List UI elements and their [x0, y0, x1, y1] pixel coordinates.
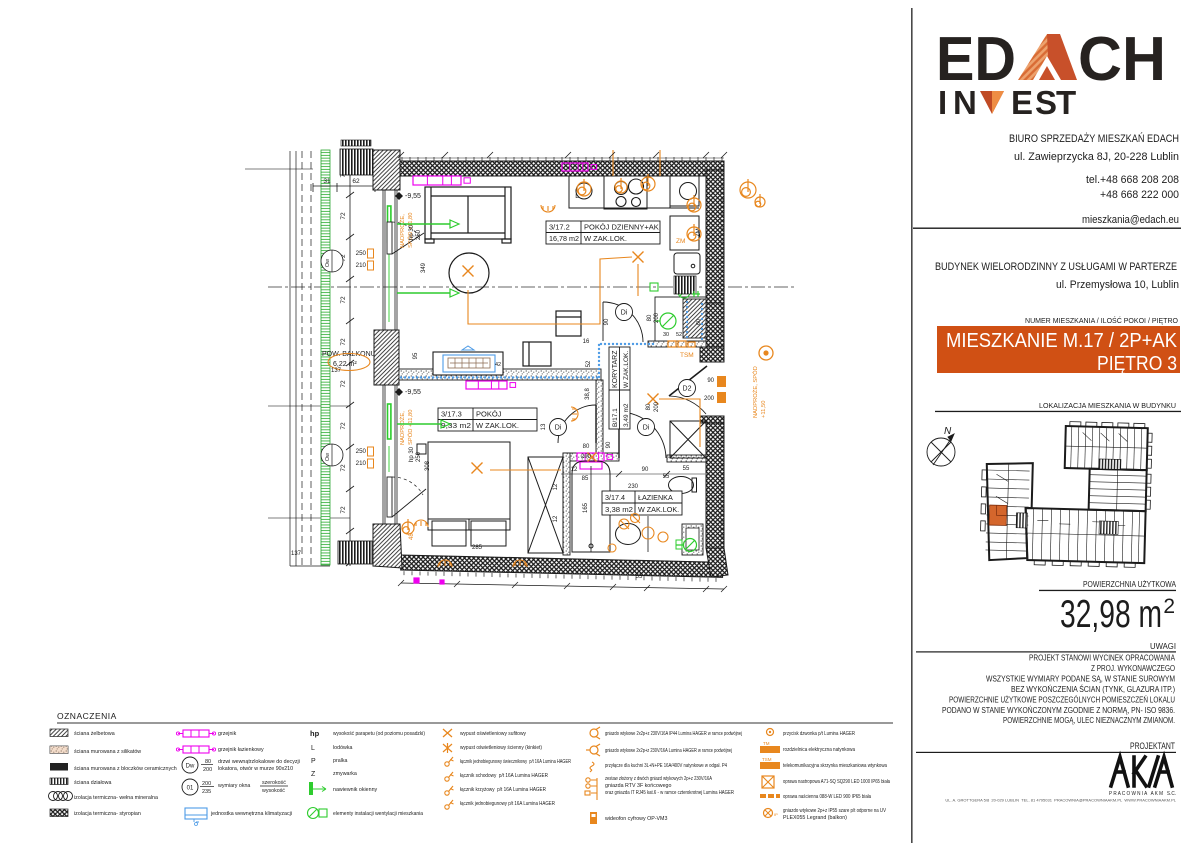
svg-text:gniazdo wtykowe 2x2p+z 230V/16: gniazdo wtykowe 2x2p+z 230V/16A Lumina H…: [605, 748, 732, 754]
svg-text:telekomunikacyjna skrzynka mie: telekomunikacyjna skrzynka mieszkaniowa …: [783, 763, 887, 769]
svg-text:wypust oświetleniowy ścienny (: wypust oświetleniowy ścienny (kinkiet): [460, 745, 542, 751]
svg-text:349: 349: [421, 262, 427, 273]
svg-text:ściana działowa: ściana działowa: [74, 780, 111, 786]
svg-text:62: 62: [352, 178, 360, 185]
svg-text:pralka: pralka: [333, 758, 347, 764]
svg-text:LOKALIZACJA MIESZKANIA W BUDYN: LOKALIZACJA MIESZKANIA W BUDYNKU: [1039, 401, 1176, 410]
svg-text:D2: D2: [683, 386, 692, 393]
svg-text:250: 250: [356, 250, 367, 257]
svg-text:72: 72: [340, 464, 347, 472]
svg-text:POWIERZCHNIA UŻYTKOWA: POWIERZCHNIA UŻYTKOWA: [1083, 579, 1176, 589]
svg-text:210: 210: [356, 262, 367, 269]
svg-text:80: 80: [647, 314, 653, 321]
svg-text:200: 200: [203, 767, 212, 773]
svg-text:UWAGI: UWAGI: [1150, 642, 1176, 651]
svg-text:308: 308: [425, 460, 431, 471]
svg-text:48: 48: [409, 533, 415, 540]
svg-text:72: 72: [340, 338, 347, 346]
svg-text:-9,55: -9,55: [405, 389, 421, 396]
svg-text:ul. Zawieprzycka 8J, 20-228 Lu: ul. Zawieprzycka 8J, 20-228 Lublin: [1014, 151, 1179, 163]
svg-text:CH: CH: [1078, 25, 1166, 94]
svg-text:72: 72: [340, 422, 347, 430]
svg-text:POKÓJ: POKÓJ: [476, 410, 502, 419]
svg-text:I: I: [938, 84, 947, 121]
svg-text:72: 72: [340, 506, 347, 514]
svg-text:80: 80: [646, 403, 652, 410]
svg-text:200: 200: [581, 454, 592, 460]
svg-text:165: 165: [583, 502, 589, 513]
svg-text:Ow: Ow: [325, 453, 331, 461]
svg-text:łącznik jednobiegunowy p/t 16A: łącznik jednobiegunowy p/t 16A Lumina HA…: [460, 801, 555, 807]
svg-text:BEZ WYKOŃCZENIA ŚCIAN (TYNK, G: BEZ WYKOŃCZENIA ŚCIAN (TYNK, GLAZURA ITP…: [1011, 683, 1175, 694]
svg-text:55: 55: [663, 474, 670, 480]
svg-text:3,38 m2: 3,38 m2: [605, 505, 633, 514]
svg-text:250: 250: [416, 451, 422, 462]
svg-text:OZNACZENIA: OZNACZENIA: [57, 711, 117, 721]
svg-text:POW. BALKONU: POW. BALKONU: [322, 351, 376, 358]
svg-text:137: 137: [331, 368, 342, 374]
svg-text:NADPROŻE,: NADPROŻE,: [399, 214, 406, 248]
svg-text:MIESZKANIE M.17 / 2P+AK: MIESZKANIE M.17 / 2P+AK: [946, 330, 1178, 352]
svg-text:BUDYNEK WIELORODZINNY Z USŁUGA: BUDYNEK WIELORODZINNY Z USŁUGAMI W PARTE…: [935, 261, 1177, 273]
svg-text:SPÓD +11,80: SPÓD +11,80: [407, 409, 414, 445]
svg-text:nawiewnik okienny: nawiewnik okienny: [333, 787, 378, 793]
svg-text:55: 55: [683, 466, 690, 472]
svg-text:Di: Di: [621, 310, 628, 317]
svg-text:N: N: [944, 426, 952, 437]
svg-text:S: S: [1035, 84, 1057, 121]
svg-text:wysokość parapetu (od poziomu: wysokość parapetu (od poziomu posadzki): [333, 731, 425, 737]
svg-text:BIURO SPRZEDAŻY MIESZKAŃ EDACH: BIURO SPRZEDAŻY MIESZKAŃ EDACH: [1009, 132, 1179, 145]
svg-text:30: 30: [663, 332, 669, 338]
svg-text:POWIERZCHNIE MOGĄ, ULEC NIEZNA: POWIERZCHNIE MOGĄ, ULEC NIEZNACZNYM ZMIA…: [1003, 715, 1175, 725]
svg-text:Dw: Dw: [186, 764, 195, 770]
svg-text:POWIERZCHNIE UŻYTKOWE POSZCZEG: POWIERZCHNIE UŻYTKOWE POSZCZEGÓLNYCH POM…: [949, 694, 1175, 704]
svg-text:90: 90: [642, 467, 649, 473]
svg-text:95: 95: [413, 352, 419, 359]
svg-text:POKÓJ DZIENNY+AK: POKÓJ DZIENNY+AK: [584, 223, 659, 232]
svg-text:PLEX055 Legrand (balkon): PLEX055 Legrand (balkon): [783, 815, 847, 821]
svg-text:wysokość: wysokość: [262, 788, 285, 794]
svg-text:P: P: [311, 758, 316, 765]
svg-text:16,78 m2: 16,78 m2: [549, 234, 579, 243]
svg-text:rozdzielnica elektryczna natyn: rozdzielnica elektryczna natynkowa: [783, 747, 855, 753]
svg-text:ZM: ZM: [676, 238, 685, 245]
svg-text:P R A C O W N I A A K M S.: P R A C O W N I A A K M S.C.: [1109, 791, 1176, 797]
svg-text:+11,50: +11,50: [761, 401, 767, 418]
svg-text:55: 55: [636, 574, 643, 580]
svg-text:ul. Przemysłowa 10, Lublin: ul. Przemysłowa 10, Lublin: [1056, 279, 1179, 291]
svg-text:12: 12: [553, 483, 559, 490]
svg-text:72: 72: [340, 296, 347, 304]
svg-text:ściana murowana z bloczków cer: ściana murowana z bloczków ceramicznych: [74, 766, 177, 772]
svg-text:przyłącze dla kuchni 3L+N+PE 1: przyłącze dla kuchni 3L+N+PE 16A/400V na…: [605, 763, 727, 769]
svg-text:lodówka: lodówka: [333, 745, 352, 751]
svg-text:jednostka wewnętrzna klimatyza: jednostka wewnętrzna klimatyzacji: [210, 811, 292, 817]
svg-text:250: 250: [356, 448, 367, 455]
svg-text:gniazdo wtykowe 2p+z IP55 szar: gniazdo wtykowe 2p+z IP55 szare p/t odpo…: [783, 808, 886, 814]
svg-text:+48 668 222 000: +48 668 222 000: [1100, 189, 1179, 201]
svg-text:52: 52: [586, 360, 592, 367]
svg-text:IP: IP: [774, 812, 778, 817]
svg-text:Z: Z: [311, 771, 316, 778]
svg-text:gniazdo wtykowe 2x2p+z 230V/16: gniazdo wtykowe 2x2p+z 230V/16A IP44 Lum…: [605, 731, 742, 737]
svg-text:zmywarka: zmywarka: [333, 771, 357, 777]
svg-text:TSM: TSM: [762, 757, 772, 762]
svg-text:6,22 m²: 6,22 m²: [333, 361, 357, 368]
svg-text:31: 31: [323, 178, 331, 185]
svg-text:hp: hp: [310, 729, 320, 738]
svg-text:38,8: 38,8: [585, 388, 591, 400]
svg-text:hp 30: hp 30: [409, 224, 415, 240]
svg-text:200: 200: [202, 781, 211, 787]
svg-text:łącznik krzyżowy p/t 16A Lumi: łącznik krzyżowy p/t 16A Lumina HAGER: [460, 787, 546, 793]
svg-text:izolacja termiczna- wełna mine: izolacja termiczna- wełna mineralna: [74, 795, 158, 801]
svg-text:42: 42: [495, 362, 501, 368]
svg-text:oraz gniazda IT RJ45 kat.6 - w: oraz gniazda IT RJ45 kat.6 - w ramce czt…: [605, 790, 734, 796]
svg-text:01: 01: [187, 786, 194, 792]
svg-text:PIĘTRO 3: PIĘTRO 3: [1097, 353, 1177, 375]
svg-text:W ZAK.LOK.: W ZAK.LOK.: [638, 505, 679, 514]
svg-text:85: 85: [582, 476, 589, 482]
svg-text:90: 90: [707, 378, 714, 384]
svg-text:72: 72: [340, 212, 347, 220]
svg-text:200: 200: [654, 401, 660, 412]
svg-text:mieszkania@edach.eu: mieszkania@edach.eu: [1082, 214, 1179, 226]
svg-text:łącznik schodowy p/t 16A Lumi: łącznik schodowy p/t 16A Lumina HAGER: [460, 773, 548, 779]
svg-text:ściana murowana z silikatów: ściana murowana z silikatów: [74, 749, 141, 755]
svg-text:KORYTARZ: KORYTARZ: [612, 350, 619, 388]
svg-text:zestaw złożony z dwóch gniazd: zestaw złożony z dwóch gniazd wtykowych …: [605, 776, 712, 782]
svg-text:oprawa naścienna 088-W LED 900: oprawa naścienna 088-W LED 900 IP65 biał…: [783, 794, 871, 800]
svg-text:90: 90: [604, 318, 610, 325]
svg-text:szerokość: szerokość: [262, 780, 286, 786]
svg-text:T: T: [1056, 84, 1076, 121]
svg-text:izolacja termiczna- styropian: izolacja termiczna- styropian: [74, 811, 141, 817]
svg-text:72: 72: [340, 380, 347, 388]
svg-text:elementy instalacji wentylacji: elementy instalacji wentylacji mieszkani…: [333, 811, 423, 817]
svg-text:wymiary okna: wymiary okna: [218, 783, 250, 789]
svg-text:W ZAK.LOK.: W ZAK.LOK.: [476, 421, 519, 430]
svg-text:PODANO W STANIE WYKOŃCZONYM ZG: PODANO W STANIE WYKOŃCZONYM ZGODNIE Z NO…: [942, 705, 1175, 715]
svg-text:200: 200: [654, 312, 660, 323]
svg-text:52: 52: [676, 332, 682, 338]
svg-text:WSZYSTKIE WYMIARY PODANE SĄ, W: WSZYSTKIE WYMIARY PODANE SĄ, W STANIE SU…: [986, 673, 1175, 683]
svg-text:3/17.2: 3/17.2: [549, 223, 570, 232]
svg-text:hp 30: hp 30: [409, 446, 415, 462]
svg-text:Z PROJ. WYKONAWCZEGO: Z PROJ. WYKONAWCZEGO: [1091, 663, 1175, 673]
svg-text:80: 80: [205, 759, 211, 765]
svg-text:32,98 m: 32,98 m: [1060, 593, 1162, 636]
svg-text:W ZAK.LOK.: W ZAK.LOK.: [584, 234, 627, 243]
svg-text:3/17.4: 3/17.4: [605, 493, 625, 502]
svg-text:200: 200: [704, 396, 715, 402]
svg-text:wideofon cyfrowy OP-VM3: wideofon cyfrowy OP-VM3: [605, 816, 667, 822]
svg-text:210: 210: [356, 460, 367, 467]
svg-text:grzejnik łazienkowy: grzejnik łazienkowy: [218, 747, 264, 753]
svg-text:Di: Di: [643, 425, 650, 432]
svg-text:L: L: [311, 745, 315, 752]
svg-text:16: 16: [583, 339, 590, 345]
svg-text:W ZAK.LOK.: W ZAK.LOK.: [623, 351, 630, 388]
svg-text:230: 230: [628, 484, 639, 490]
svg-text:Di: Di: [555, 425, 562, 432]
svg-text:wypust oświetleniowy sufitowy: wypust oświetleniowy sufitowy: [460, 731, 526, 737]
svg-text:3,49 m2: 3,49 m2: [623, 403, 630, 427]
svg-text:2: 2: [1163, 595, 1175, 618]
svg-text:oprawa nastropowa A71-SQ SQ290: oprawa nastropowa A71-SQ SQ290 LED 1000 …: [783, 779, 890, 785]
svg-text:137: 137: [291, 551, 302, 557]
svg-text:285: 285: [472, 545, 483, 551]
svg-text:90: 90: [606, 441, 612, 448]
svg-text:ściana żelbetowa: ściana żelbetowa: [74, 731, 115, 737]
svg-text:N: N: [953, 84, 977, 121]
svg-text:NUMER MIESZKANIA / ILOŚĆ POKOI: NUMER MIESZKANIA / ILOŚĆ POKOI / PIĘTRO: [1025, 316, 1178, 325]
svg-text:łącznik jednobiegunowy świeczn: łącznik jednobiegunowy świecznikowy p/t …: [460, 759, 571, 765]
svg-text:UL. A. GROTTGERA 5/8 20-029 L: UL. A. GROTTGERA 5/8 20-029 LUBLIN TEL. …: [945, 798, 1176, 803]
svg-text:TM: TM: [763, 741, 770, 746]
svg-text:12: 12: [571, 467, 578, 473]
svg-text:ŁAZIENKA: ŁAZIENKA: [638, 493, 673, 502]
svg-text:drzwi wewnątrzlokalowe do decy: drzwi wewnątrzlokalowe do decyzji: [218, 759, 300, 765]
svg-text:PROJEKTANT: PROJEKTANT: [1130, 741, 1175, 751]
svg-text:250: 250: [416, 229, 422, 240]
svg-text:gniazda RTV 3F końcowego: gniazda RTV 3F końcowego: [605, 783, 672, 789]
svg-text:3/17.3: 3/17.3: [441, 410, 462, 419]
svg-text:-9,55: -9,55: [405, 193, 421, 200]
svg-text:TSM: TSM: [680, 352, 694, 359]
svg-text:NADPROŻE,: NADPROŻE,: [399, 411, 406, 445]
svg-text:przycisk dzwonka p/t Lumina HA: przycisk dzwonka p/t Lumina HAGER: [783, 731, 855, 737]
svg-text:12: 12: [553, 515, 559, 522]
svg-text:235: 235: [202, 789, 211, 795]
svg-text:lokatora, otwór w murze 90x210: lokatora, otwór w murze 90x210: [218, 766, 293, 772]
svg-text:L: L: [575, 193, 579, 200]
svg-text:60: 60: [696, 319, 702, 325]
svg-text:13: 13: [541, 423, 547, 430]
svg-text:grzejnik: grzejnik: [218, 731, 237, 737]
svg-text:NADPROŻE, SPÓD: NADPROŻE, SPÓD: [752, 366, 759, 418]
svg-text:B/17.1: B/17.1: [612, 408, 619, 427]
svg-text:tel.+48 668 208 208: tel.+48 668 208 208: [1086, 174, 1179, 186]
svg-text:Ow: Ow: [325, 259, 331, 267]
svg-text:80: 80: [583, 444, 590, 450]
svg-text:E: E: [1011, 84, 1033, 121]
svg-text:PROJEKT STANOWI WYCINEK OPRACO: PROJEKT STANOWI WYCINEK OPRACOWANIA: [1029, 653, 1175, 663]
